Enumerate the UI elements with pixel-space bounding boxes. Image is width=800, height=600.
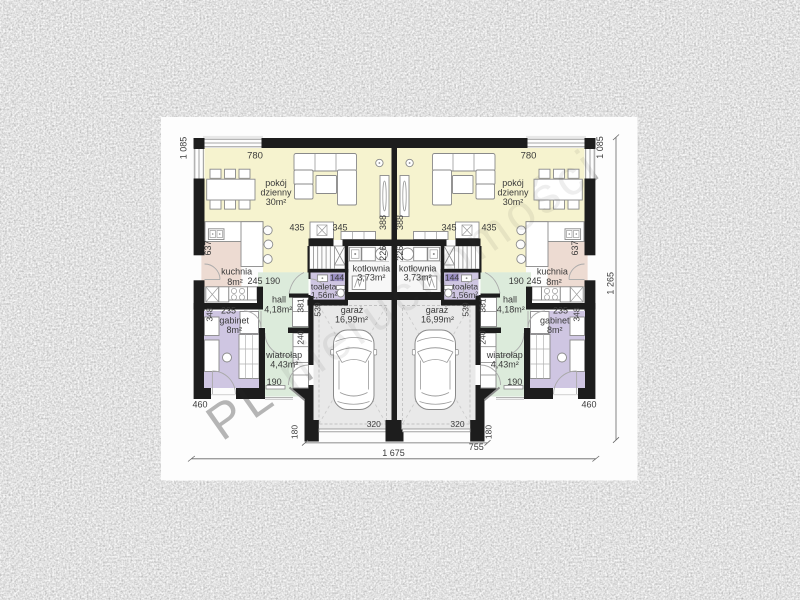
svg-text:235: 235: [553, 306, 568, 316]
svg-text:30m²: 30m²: [266, 197, 287, 207]
svg-text:16,99m²: 16,99m²: [335, 314, 368, 324]
svg-text:1,56m²: 1,56m²: [452, 290, 479, 300]
svg-text:4,18m²: 4,18m²: [497, 305, 525, 315]
svg-text:180: 180: [484, 425, 494, 439]
svg-text:345: 345: [441, 223, 456, 233]
svg-text:780: 780: [521, 151, 537, 162]
svg-text:1 085: 1 085: [595, 136, 605, 159]
svg-text:240: 240: [296, 330, 306, 344]
svg-text:3,73m²: 3,73m²: [404, 273, 432, 283]
svg-text:388: 388: [395, 215, 405, 230]
svg-text:435: 435: [289, 223, 304, 233]
svg-text:hall: hall: [272, 295, 286, 305]
svg-text:637: 637: [203, 240, 213, 255]
svg-text:hall: hall: [503, 295, 517, 305]
svg-text:245: 245: [526, 276, 541, 286]
svg-text:1 085: 1 085: [179, 137, 189, 160]
svg-text:4,43m²: 4,43m²: [270, 360, 298, 370]
svg-text:8m²: 8m²: [546, 277, 562, 287]
svg-text:320: 320: [450, 419, 464, 429]
svg-text:wiatrołap: wiatrołap: [486, 350, 523, 360]
svg-text:755: 755: [469, 442, 484, 452]
svg-text:190: 190: [265, 276, 280, 286]
svg-text:460: 460: [581, 400, 596, 410]
svg-text:8m²: 8m²: [227, 277, 243, 287]
svg-text:539: 539: [461, 302, 471, 316]
svg-text:8m²: 8m²: [226, 325, 242, 335]
svg-text:kuchnia: kuchnia: [221, 267, 252, 277]
svg-text:kuchnia: kuchnia: [537, 267, 568, 277]
svg-text:180: 180: [290, 425, 300, 439]
svg-text:435: 435: [481, 223, 496, 233]
svg-text:240: 240: [478, 330, 488, 344]
svg-text:190: 190: [507, 377, 522, 387]
svg-text:30m²: 30m²: [503, 197, 524, 207]
svg-text:pokój: pokój: [265, 178, 287, 188]
svg-text:4,18m²: 4,18m²: [264, 305, 292, 315]
svg-text:1 265: 1 265: [606, 272, 616, 295]
svg-text:3,73m²: 3,73m²: [357, 273, 385, 283]
svg-text:780: 780: [247, 151, 263, 162]
svg-text:637: 637: [570, 240, 580, 255]
svg-text:460: 460: [192, 400, 207, 410]
svg-text:1,56m²: 1,56m²: [311, 290, 338, 300]
svg-text:gabinet: gabinet: [219, 316, 249, 326]
svg-text:381: 381: [296, 298, 306, 312]
svg-text:190: 190: [267, 377, 282, 387]
svg-text:226: 226: [395, 246, 405, 261]
svg-text:16,99m²: 16,99m²: [421, 314, 454, 324]
svg-text:320: 320: [367, 419, 381, 429]
svg-text:345: 345: [332, 223, 347, 233]
svg-text:348: 348: [572, 307, 582, 321]
svg-text:235: 235: [221, 306, 236, 316]
svg-text:8m²: 8m²: [547, 325, 563, 335]
svg-text:348: 348: [205, 307, 215, 321]
svg-text:388: 388: [378, 215, 388, 230]
svg-text:wiatrołap: wiatrołap: [265, 350, 302, 360]
svg-text:pokój: pokój: [502, 178, 524, 188]
svg-text:245: 245: [247, 276, 262, 286]
svg-text:190: 190: [509, 276, 524, 286]
svg-text:1 675: 1 675: [382, 448, 405, 458]
svg-text:381: 381: [478, 298, 488, 312]
svg-text:539: 539: [313, 302, 323, 316]
svg-text:226: 226: [378, 246, 388, 261]
svg-text:gabinet: gabinet: [540, 316, 570, 326]
svg-text:dzienny: dzienny: [497, 188, 529, 198]
svg-text:4,43m²: 4,43m²: [491, 360, 519, 370]
svg-text:dzienny: dzienny: [260, 188, 292, 198]
